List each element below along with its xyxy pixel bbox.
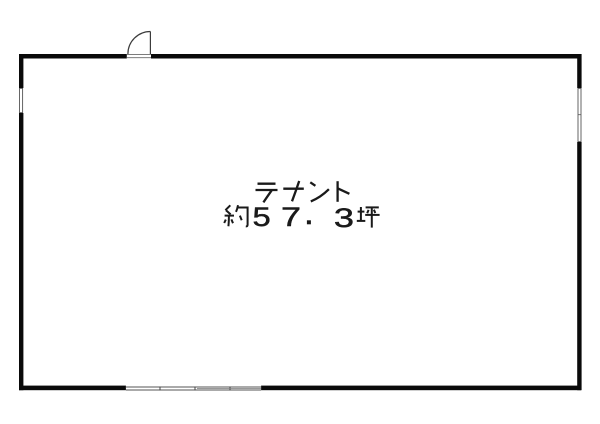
- svg-text:5: 5: [253, 203, 271, 232]
- svg-text:3: 3: [334, 203, 354, 233]
- svg-text:7: 7: [281, 202, 301, 232]
